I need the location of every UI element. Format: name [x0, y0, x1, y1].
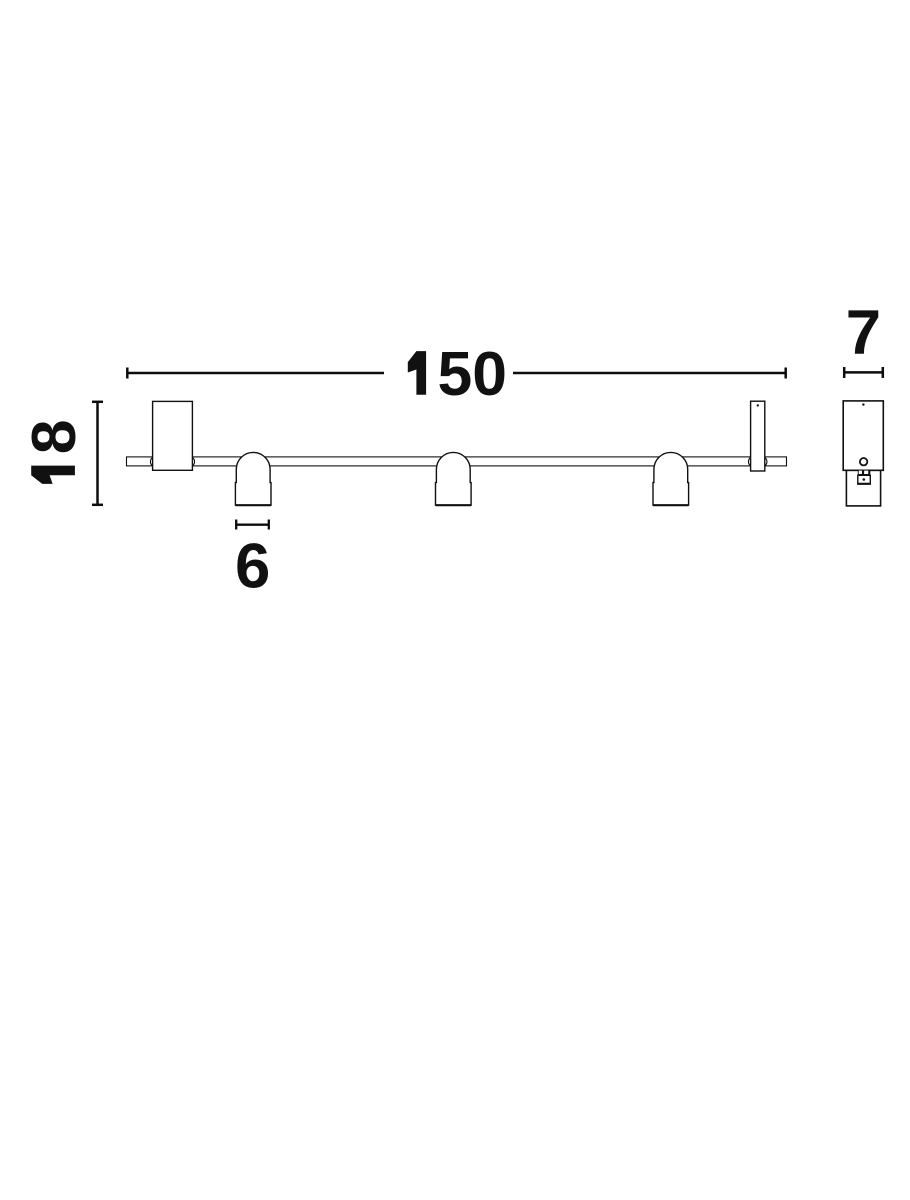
svg-text:6: 6: [235, 531, 270, 601]
svg-text:8: 8: [19, 419, 89, 454]
svg-text:50: 50: [438, 339, 508, 409]
svg-text:7: 7: [846, 298, 881, 368]
